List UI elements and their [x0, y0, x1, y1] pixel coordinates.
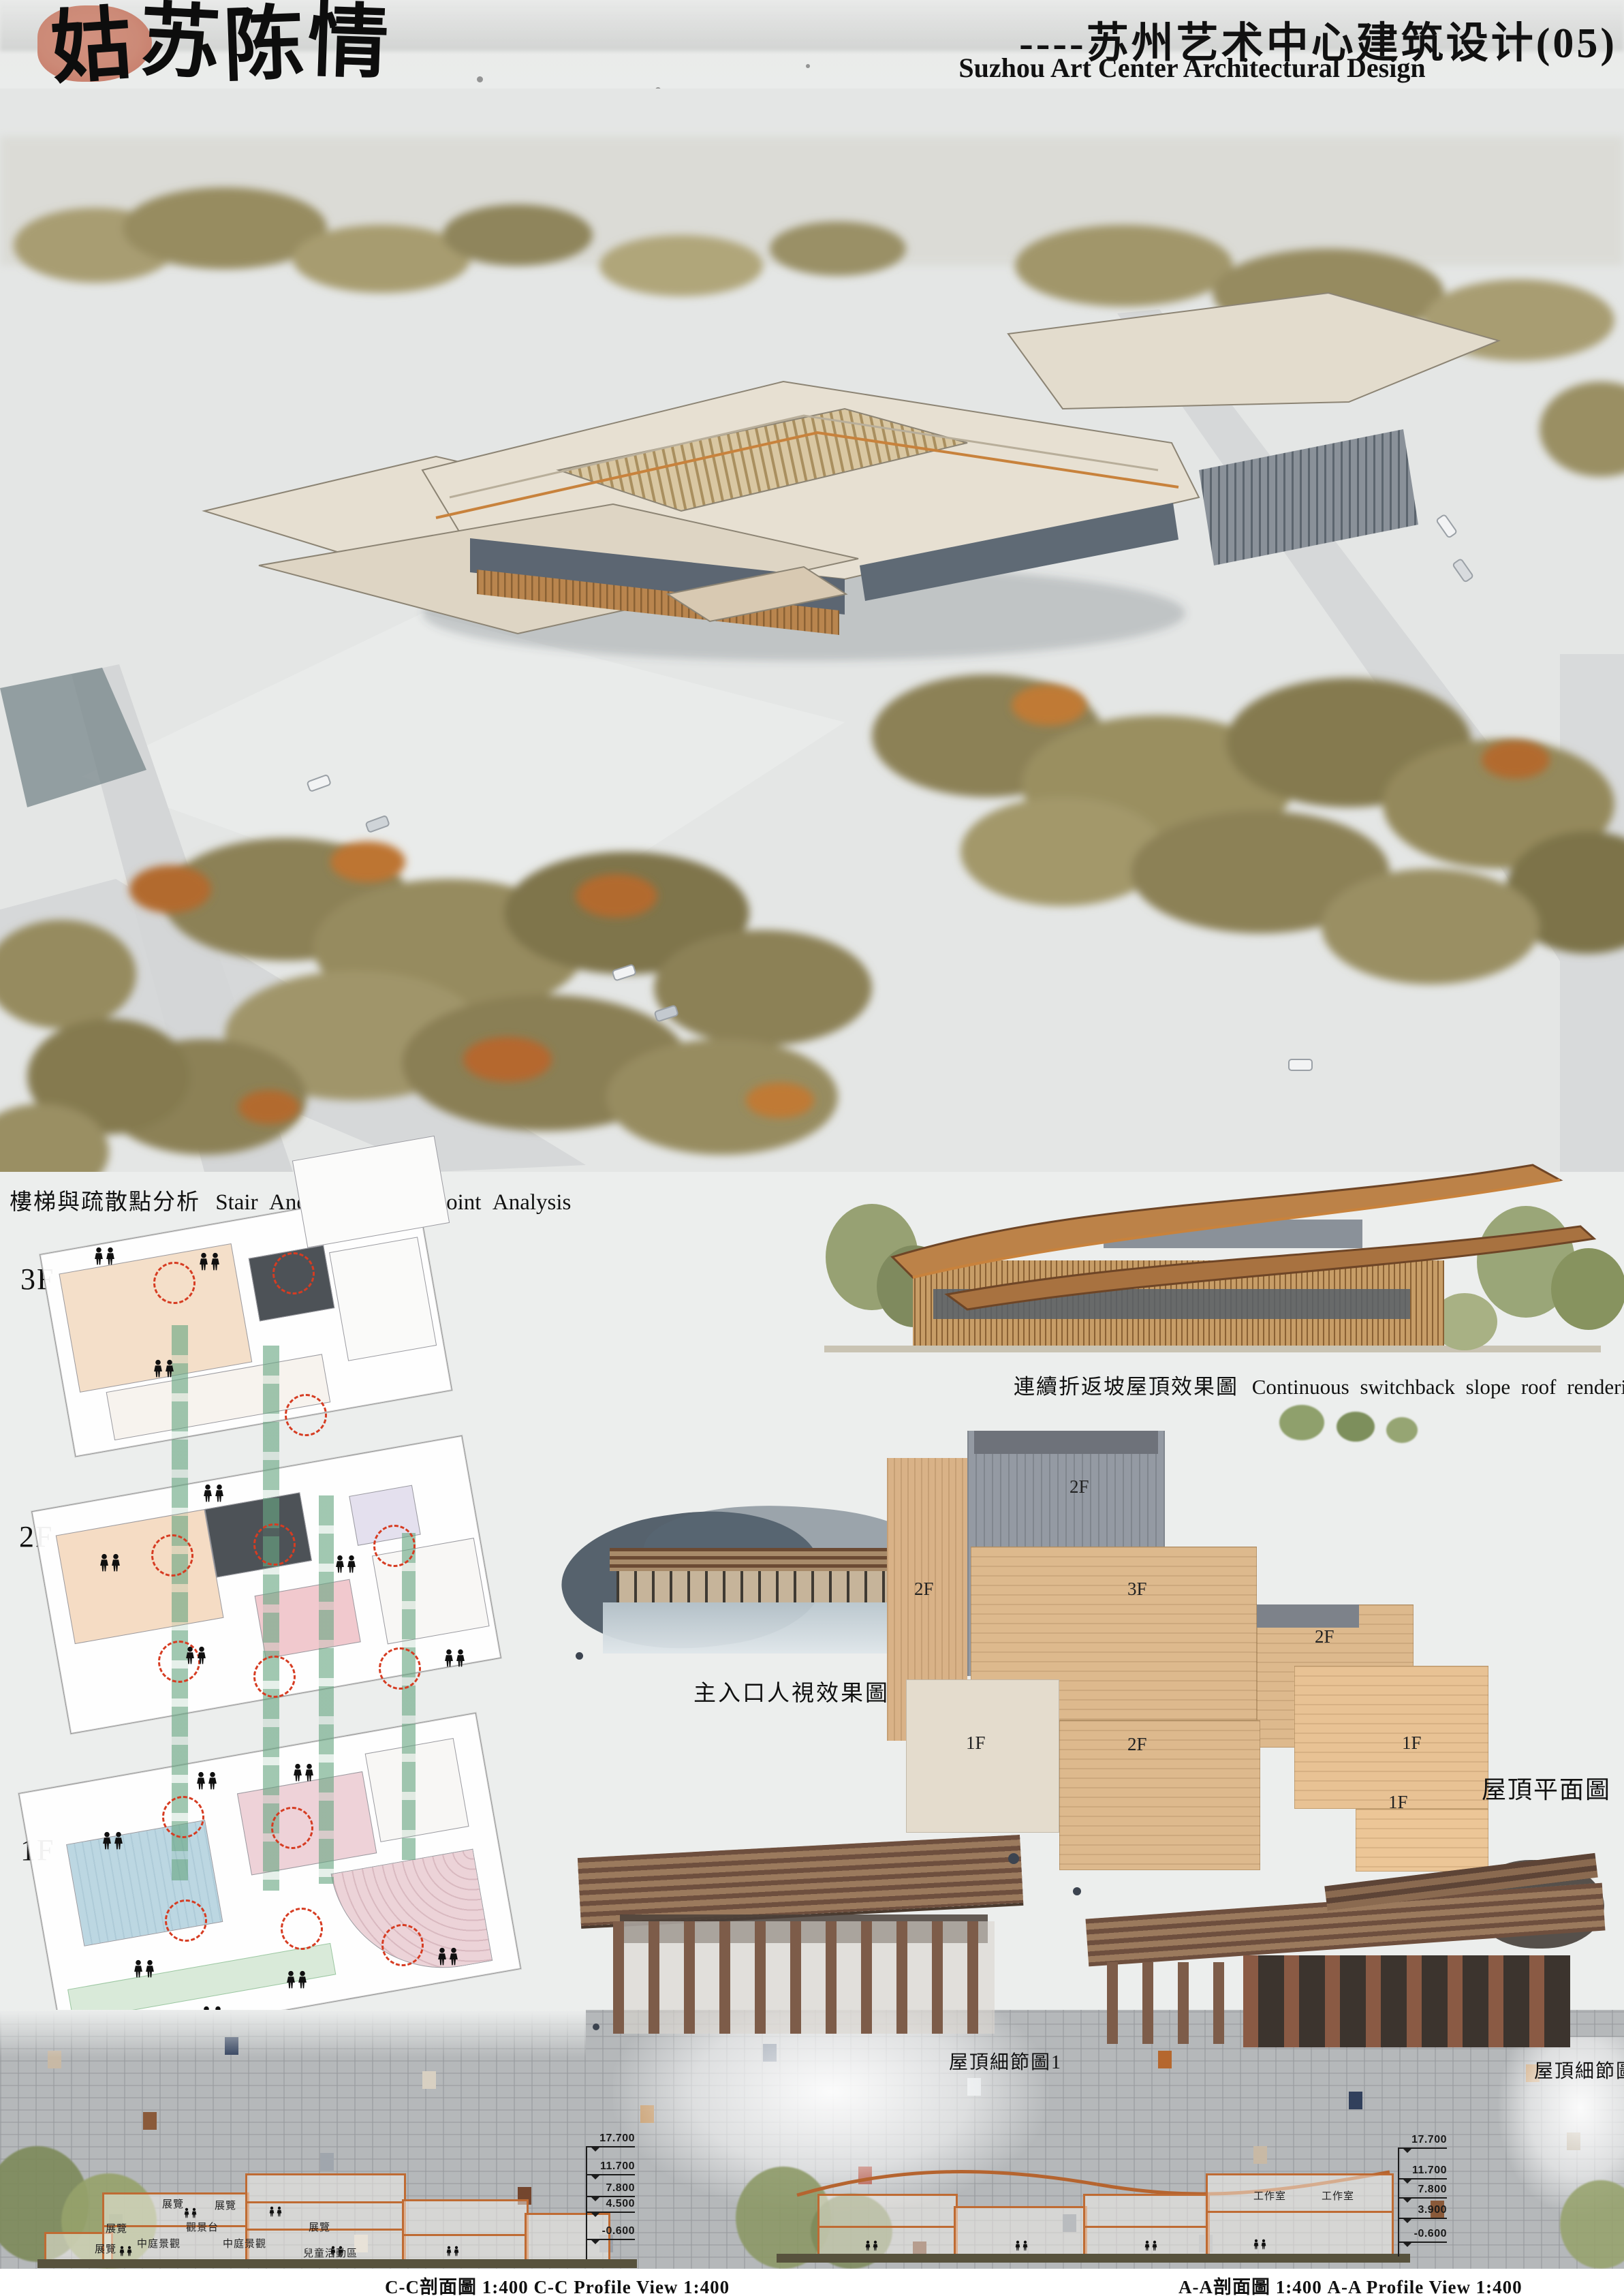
ink-splatter-dot — [576, 1652, 583, 1660]
elevation-ground — [824, 1346, 1601, 1352]
elevation-value: -0.600 — [602, 2225, 635, 2237]
evacuation-path-band — [319, 1495, 334, 1884]
section-ground — [37, 2259, 637, 2268]
evacuation-point-circle — [272, 1252, 315, 1294]
calligraphy-char: 陈 — [222, 3, 305, 86]
roof-detail-rendering-2 — [1066, 1860, 1621, 2085]
person-pair-icon — [446, 2246, 459, 2256]
floor-plan-3f — [40, 1188, 452, 1457]
room-label: 觀景台 — [186, 2220, 219, 2234]
elevation-level: 11.700 — [586, 2162, 635, 2175]
room-label: 展覽 — [162, 2197, 184, 2211]
evacuation-point-circle — [379, 1647, 421, 1690]
roof-detail-caption-1: 屋頂細節圖1 — [949, 2047, 1062, 2075]
section-caption-cc: C-C剖面圖 1:400 C-C Profile View 1:400 — [385, 2272, 730, 2296]
room-label: 展覽 — [106, 2221, 127, 2235]
person-pair-icon — [269, 2206, 282, 2217]
roof-rendering-caption-cn: 連續折返坡屋頂效果圖 — [1014, 1375, 1238, 1399]
elevation-value: 3.900 — [1418, 2204, 1447, 2216]
elevation-value: 17.700 — [599, 2132, 635, 2145]
person-pair-icon — [94, 1247, 115, 1265]
roof-block-gray-notch — [1257, 1604, 1359, 1628]
evacuation-point-circle — [253, 1523, 296, 1566]
section-ground — [777, 2254, 1410, 2263]
entrance-caption: 主入口人視效果圖 — [693, 1675, 890, 1707]
person-pair-icon — [184, 2207, 197, 2218]
room-label: 展覽 — [309, 2220, 330, 2234]
roof-plan: 2F 2F 3F 2F 1F 2F 1F 1F — [879, 1427, 1601, 1877]
roof-elevation-svg — [811, 1117, 1624, 1376]
analysis-title-cn: 樓梯與疏散點分析 — [10, 1190, 200, 1215]
roof-plan-label: 1F — [1388, 1792, 1408, 1813]
person-pair-icon — [196, 1771, 217, 1790]
elevation-value: 7.800 — [1418, 2184, 1447, 2196]
calligraphy-char: 情 — [307, 0, 390, 83]
roof-block-light — [906, 1679, 1059, 1833]
plan-room — [56, 1509, 224, 1644]
room-label: 工作室 — [1322, 2188, 1354, 2203]
person-pair-icon — [102, 1831, 123, 1850]
ink-splatter-dot — [1008, 1853, 1019, 1864]
person-pair-icon — [119, 2246, 132, 2256]
elevation-value: -0.600 — [1414, 2228, 1447, 2240]
person-pair-icon — [1015, 2240, 1028, 2251]
ink-splatter-dot — [1073, 1887, 1081, 1895]
floor-line — [1208, 2211, 1392, 2213]
calligraphy-char: 姑 — [48, 3, 134, 89]
person-pair-icon — [444, 1649, 465, 1667]
roof-block-gray-ridge — [974, 1431, 1158, 1454]
person-pair-icon — [865, 2240, 878, 2251]
detail2-brick-columns — [1243, 1955, 1570, 2047]
person-pair-icon — [185, 1646, 206, 1664]
bottom-caption-strip: C-C剖面圖 1:400 C-C Profile View 1:400 A-A剖… — [0, 2269, 1624, 2296]
roof-plan-caption: 屋頂平面圖 — [1482, 1770, 1611, 1805]
roof-elevation-rendering — [811, 1117, 1624, 1376]
person-pair-icon — [286, 1970, 307, 1989]
elevation-level: 17.700 — [586, 2134, 635, 2147]
person-pair-icon — [1253, 2239, 1266, 2250]
person-pair-icon — [199, 1252, 220, 1271]
floor-line — [247, 2201, 404, 2203]
evacuation-point-circle — [281, 1908, 323, 1950]
room-label: 展覽 — [215, 2198, 236, 2212]
elevation-ladder-aa: 17.700 11.700 7.800 3.900 -0.600 — [1396, 2139, 1450, 2256]
evacuation-point-circle — [165, 1899, 207, 1942]
elevation-level: -0.600 — [1398, 2229, 1447, 2243]
roof-block — [1294, 1666, 1488, 1809]
elevation-level: 17.700 — [1398, 2135, 1447, 2149]
roof-plan-label: 1F — [1402, 1733, 1422, 1754]
elevation-level: 4.500 — [586, 2199, 635, 2213]
calligraphy-title: 姑 苏 陈 情 — [41, 1, 361, 87]
elevation-value: 11.700 — [1412, 2165, 1447, 2177]
floor-line — [404, 2234, 527, 2236]
person-pair-icon — [335, 1555, 356, 1573]
calligraphy-char: 苏 — [138, 0, 222, 84]
evacuation-point-circle — [285, 1394, 327, 1436]
evacuation-point-circle — [162, 1796, 204, 1838]
plan-wing — [365, 1738, 469, 1842]
elevation-level: 7.800 — [586, 2184, 635, 2197]
floor-line — [819, 2226, 956, 2228]
person-pair-icon — [1144, 2240, 1157, 2251]
ink-splatter-dot — [593, 2023, 599, 2030]
evacuation-point-circle — [151, 1534, 193, 1577]
subtitle-english: Suzhou Art Center Architectural Design — [892, 52, 1492, 84]
section-box — [954, 2206, 1087, 2259]
detail2-colonnade — [1107, 1962, 1243, 2044]
plan-auditorium-fan — [331, 1848, 493, 1985]
small-tree — [1337, 1412, 1375, 1442]
section-box — [402, 2199, 529, 2263]
roof-plan-label: 1F — [966, 1733, 986, 1754]
section-aa-drawing: 工作室 工作室 — [777, 2146, 1410, 2269]
roof-rendering-caption: 連續折返坡屋頂效果圖 Continuous switchback slope r… — [1014, 1369, 1624, 1400]
person-pair-icon — [330, 2246, 343, 2256]
evacuation-point-circle — [373, 1525, 416, 1567]
elevation-level: 7.800 — [1398, 2185, 1447, 2199]
roof-rendering-caption-en: Continuous switchback slope roof renderi… — [1252, 1375, 1624, 1399]
elevation-level: 3.900 — [1398, 2205, 1447, 2219]
small-tree — [1386, 1417, 1418, 1443]
roof-plan-label: 3F — [1127, 1579, 1147, 1600]
room-label: 中庭景觀 — [223, 2236, 266, 2250]
room-label: 工作室 — [1253, 2188, 1286, 2203]
elevation-value: 7.800 — [606, 2182, 635, 2194]
person-pair-icon — [203, 1484, 224, 1502]
evacuation-point-circle — [153, 1262, 196, 1304]
evacuation-point-circle — [271, 1807, 313, 1849]
section-box — [1206, 2173, 1394, 2259]
roof-plan-label: 2F — [1069, 1476, 1089, 1498]
elevation-level: 11.700 — [1398, 2166, 1447, 2179]
room-label: 中庭景觀 — [137, 2236, 181, 2250]
roof-block — [1059, 1720, 1260, 1870]
elevation-ladder-cc: 17.700 11.700 7.800 4.500 -0.600 — [584, 2138, 638, 2259]
person-pair-icon — [153, 1359, 174, 1378]
small-tree — [1279, 1405, 1324, 1440]
presentation-board: 姑 苏 陈 情 ----苏州艺术中心建筑设计(05) Suzhou Art Ce… — [0, 0, 1624, 2296]
elevation-value: 11.700 — [600, 2160, 635, 2173]
mosaic-fade — [0, 2010, 586, 2058]
aerial-rendering — [0, 89, 1624, 1172]
elevation-level: -0.600 — [586, 2227, 635, 2240]
roof-detail-caption-2: 屋頂細節圖2 — [1534, 2056, 1624, 2083]
plan-room — [329, 1237, 437, 1361]
elevation-value: 17.700 — [1411, 2134, 1447, 2146]
section-cc-drawing: 展覽 展覽 展覽 觀景台 展覽 中庭景觀 中庭景觀 展覽 兒童活動區 — [37, 2172, 637, 2271]
evacuation-point-circle — [253, 1656, 296, 1698]
person-pair-icon — [293, 1763, 314, 1782]
room-label: 展覽 — [95, 2241, 116, 2256]
floor-line — [1085, 2226, 1208, 2228]
roof-plan-label: 2F — [914, 1579, 934, 1600]
person-pair-icon — [134, 1959, 155, 1978]
roof-plan-label: 2F — [1127, 1734, 1147, 1755]
section-box — [817, 2194, 958, 2259]
section-caption-aa: A-A剖面圖 1:400 A-A Profile View 1:400 — [1178, 2272, 1522, 2296]
detail1-roof-slab — [578, 1835, 1023, 1926]
person-pair-icon — [437, 1947, 458, 1966]
evacuation-path-band — [263, 1346, 279, 1891]
roof-detail-rendering-1 — [572, 1833, 1042, 2058]
elevation-value: 4.500 — [606, 2198, 635, 2210]
ink-splatter-dot — [477, 76, 483, 82]
evacuation-path-band — [402, 1533, 416, 1860]
person-pair-icon — [99, 1553, 121, 1572]
roof-plan-label: 2F — [1315, 1626, 1334, 1647]
ink-splatter-dot — [806, 64, 810, 68]
detail1-colonnade — [613, 1921, 995, 2034]
aerial-rendering-svg — [0, 89, 1624, 1172]
evacuation-point-circle — [381, 1924, 424, 1966]
